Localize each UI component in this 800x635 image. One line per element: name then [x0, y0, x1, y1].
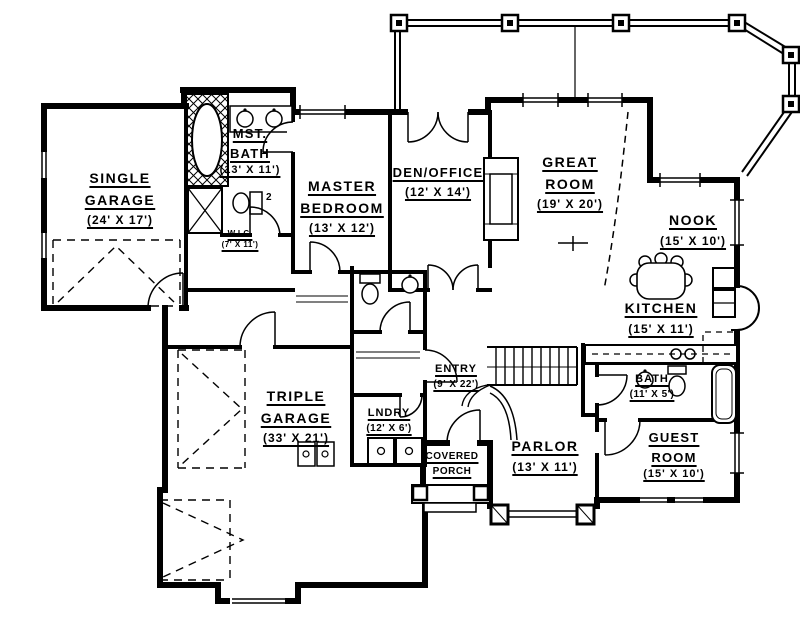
front-door	[447, 410, 480, 443]
toilet-icon	[360, 274, 380, 283]
room-label-entry: ENTRY (9' X 22')	[433, 362, 478, 392]
sink-icon	[402, 277, 418, 293]
porch-and-bays	[412, 485, 594, 524]
room-label-great-room: GREAT ROOM (19' X 20')	[537, 152, 603, 214]
room-label-kitchen: KITCHEN (15' X 11')	[625, 298, 698, 338]
room-label-single-garage: SINGLE GARAGE (24' X 17')	[85, 168, 155, 230]
porch-post	[413, 486, 427, 500]
porch-post	[474, 486, 488, 500]
room-label-bath: BATH (11' X 5')	[630, 372, 675, 402]
floor-plan: SINGLE GARAGE (24' X 17') MST. BATH (13'…	[0, 0, 800, 635]
den-hall-double-door	[428, 265, 453, 290]
master-bedroom-door	[310, 242, 340, 272]
toilet-icon	[250, 192, 262, 214]
room-label-parlor: PARLOR (13' X 11')	[511, 436, 578, 476]
single-garage-door	[148, 273, 183, 308]
room-label-nook: NOOK (15' X 10')	[660, 210, 726, 250]
powder-door	[380, 302, 410, 332]
stairs	[462, 347, 577, 407]
door-tag: 2	[266, 192, 272, 203]
nook-table-icon	[630, 253, 692, 299]
bath-door	[597, 375, 627, 405]
room-label-mst-bath: MST. BATH (13' X 11')	[220, 124, 281, 179]
bathtub-icon	[192, 104, 222, 176]
parlor-arch	[490, 386, 517, 440]
room-label-guest-room: GUEST ROOM (15' X 10')	[643, 428, 704, 483]
guest-room-door	[605, 420, 640, 455]
porch-step	[424, 503, 476, 512]
room-label-wic: W.I.C. (7' X 11')	[222, 228, 259, 250]
room-label-lndry: LNDRY (12' X 6')	[366, 406, 411, 436]
room-label-den-office: DEN/OFFICE (12' X 14')	[393, 163, 484, 201]
mudroom-door	[240, 312, 275, 347]
room-label-triple-garage: TRIPLE GARAGE (33' X 21')	[261, 386, 331, 448]
room-label-master-bedroom: MASTER BEDROOM (13' X 12')	[300, 176, 384, 238]
center-mark	[558, 236, 588, 251]
fireplace	[484, 158, 518, 240]
room-label-covered-porch: COVERED PORCH	[426, 450, 479, 479]
